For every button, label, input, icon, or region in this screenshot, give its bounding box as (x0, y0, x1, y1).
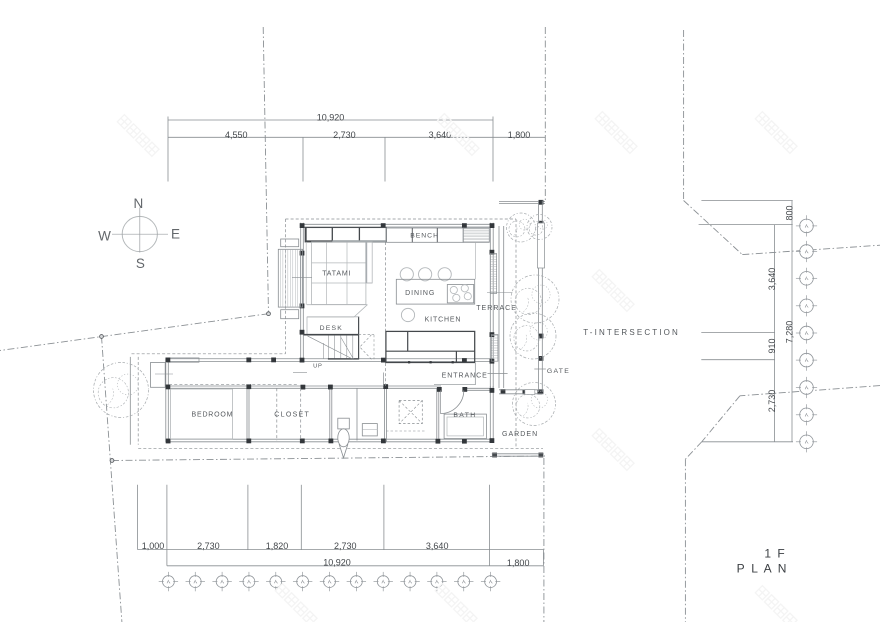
svg-text:N: N (134, 196, 144, 211)
svg-text:800: 800 (784, 205, 794, 220)
svg-text:KITCHEN: KITCHEN (425, 317, 462, 324)
svg-text:2,730: 2,730 (333, 130, 356, 140)
svg-text:BENCH: BENCH (410, 233, 439, 240)
svg-text:S: S (136, 256, 145, 271)
svg-text:3,640: 3,640 (426, 541, 449, 551)
svg-text:1,800: 1,800 (507, 558, 530, 568)
svg-text:DESK: DESK (320, 325, 343, 332)
svg-text:CLOSET: CLOSET (274, 412, 310, 419)
svg-text:P L A N: P L A N (737, 562, 789, 576)
svg-text:GATE: GATE (547, 368, 570, 375)
svg-text:4,550: 4,550 (225, 130, 248, 140)
svg-text:T-INTERSECTION: T-INTERSECTION (583, 328, 680, 337)
svg-text:BATH: BATH (453, 412, 476, 419)
svg-text:BEDROOM: BEDROOM (192, 412, 234, 419)
svg-text:2,730: 2,730 (334, 541, 357, 551)
svg-text:1,800: 1,800 (508, 130, 531, 140)
svg-text:ENTRANCE: ENTRANCE (442, 373, 488, 380)
svg-text:UP: UP (313, 363, 322, 369)
svg-text:GARDEN: GARDEN (502, 431, 538, 438)
svg-text:1 F: 1 F (764, 547, 786, 561)
svg-text:3,640: 3,640 (767, 268, 777, 291)
svg-text:W: W (98, 228, 111, 243)
svg-text:1,000: 1,000 (142, 541, 165, 551)
svg-text:10,920: 10,920 (323, 557, 351, 567)
svg-text:7,280: 7,280 (784, 321, 794, 344)
svg-text:1,820: 1,820 (266, 541, 289, 551)
svg-text:2,730: 2,730 (197, 541, 220, 551)
svg-text:TERRACE: TERRACE (476, 305, 517, 312)
svg-text:E: E (171, 226, 180, 241)
svg-text:DINING: DINING (405, 290, 435, 297)
svg-text:2,730: 2,730 (767, 390, 777, 413)
svg-text:10,920: 10,920 (317, 113, 345, 123)
svg-text:TATAMI: TATAMI (322, 270, 351, 277)
svg-text:910: 910 (767, 338, 777, 353)
